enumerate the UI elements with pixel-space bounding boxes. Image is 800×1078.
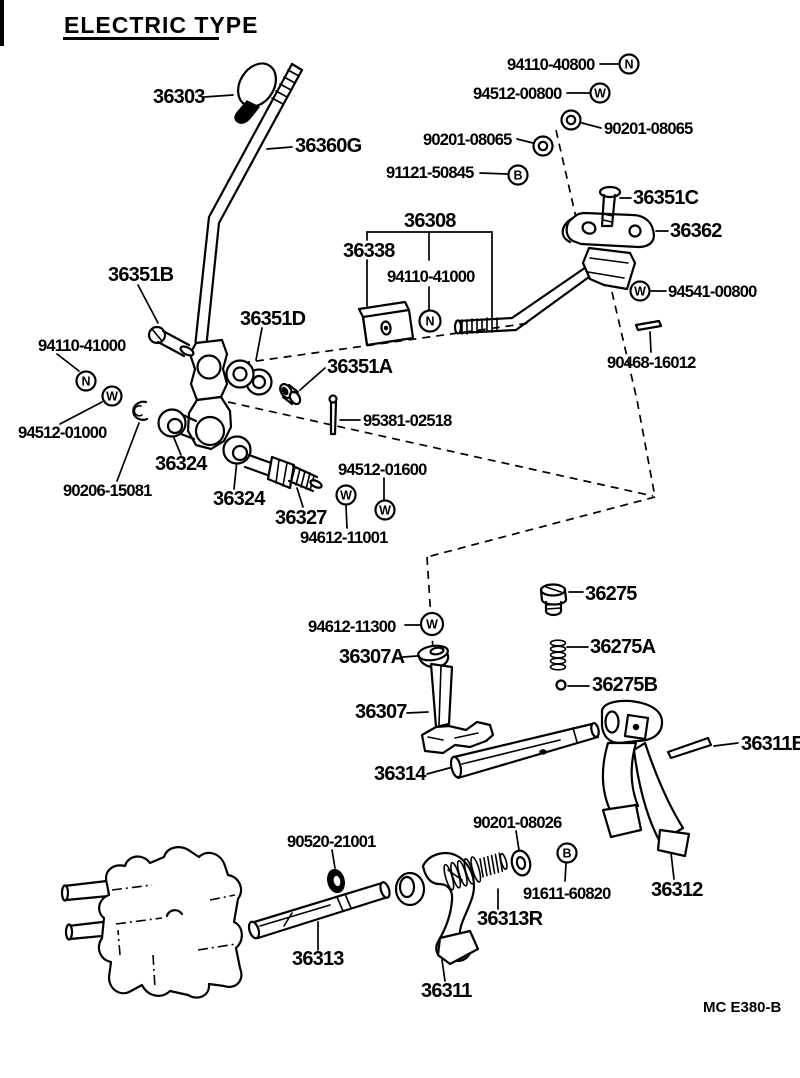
pin-95381-drawing bbox=[330, 396, 337, 435]
label-36275: 36275 bbox=[585, 583, 637, 605]
label-36351B: 36351B bbox=[108, 264, 174, 286]
label-90206-15081: 90206-15081 bbox=[63, 482, 152, 500]
svg-text:B: B bbox=[562, 847, 571, 861]
label-36351D: 36351D bbox=[240, 308, 306, 330]
bolt-badge-icon: B bbox=[509, 166, 528, 185]
label-90468-16012: 90468-16012 bbox=[607, 354, 696, 372]
label-91121-50845: 91121-50845 bbox=[386, 164, 474, 182]
washer-90201-08026-drawing bbox=[509, 849, 533, 878]
washer-badge-icon: W bbox=[337, 486, 356, 505]
rod-36313-drawing bbox=[247, 881, 391, 939]
nut-badge-icon: N bbox=[420, 311, 441, 332]
rod-36308-drawing bbox=[455, 263, 592, 334]
page-title: ELECTRIC TYPE bbox=[64, 12, 258, 38]
label-90201-08026: 90201-08026 bbox=[473, 814, 562, 832]
label-36311B: 36311B bbox=[741, 733, 800, 755]
fork-36312-drawing bbox=[602, 701, 689, 856]
label-36308: 36308 bbox=[404, 210, 456, 232]
label-95381-02518: 95381-02518 bbox=[363, 412, 452, 430]
washer-badge-icon: W bbox=[376, 501, 395, 520]
svg-text:N: N bbox=[81, 375, 90, 389]
label-36312: 36312 bbox=[651, 879, 703, 901]
label-36303: 36303 bbox=[153, 86, 205, 108]
label-36327: 36327 bbox=[275, 507, 327, 529]
label-36314: 36314 bbox=[374, 763, 427, 785]
label-36313: 36313 bbox=[292, 948, 344, 970]
bushing-36351a-drawing bbox=[278, 382, 302, 406]
label-94541-00800: 94541-00800 bbox=[668, 283, 757, 301]
svg-text:W: W bbox=[340, 489, 352, 503]
label-94612-11300: 94612-11300 bbox=[308, 618, 396, 636]
label-36360G: 36360G bbox=[295, 135, 362, 157]
shift-knob-drawing bbox=[230, 56, 283, 123]
title-underline bbox=[63, 37, 219, 40]
nut-badge-icon: N bbox=[620, 55, 639, 74]
parts-diagram-page: N W B N W N W W W W B ELECTRIC TYPE 3630… bbox=[0, 0, 800, 1078]
label-90201-08065-left: 90201-08065 bbox=[423, 131, 512, 149]
svg-text:W: W bbox=[379, 504, 391, 518]
svg-text:B: B bbox=[513, 169, 522, 183]
bolt-badge-icon: B bbox=[558, 844, 577, 863]
label-36275A: 36275A bbox=[590, 636, 656, 658]
label-94110-40800: 94110-40800 bbox=[507, 56, 595, 74]
label-94110-41000-center: 94110-41000 bbox=[387, 268, 475, 286]
label-36351C: 36351C bbox=[633, 187, 699, 209]
label-94512-00800: 94512-00800 bbox=[473, 85, 562, 103]
label-36307: 36307 bbox=[355, 701, 407, 723]
label-36351A: 36351A bbox=[327, 356, 393, 378]
svg-text:W: W bbox=[594, 87, 606, 101]
ring-90520-drawing bbox=[325, 868, 346, 894]
label-91611-60820: 91611-60820 bbox=[523, 885, 611, 903]
svg-text:W: W bbox=[634, 285, 646, 299]
svg-text:W: W bbox=[426, 618, 438, 632]
svg-text:N: N bbox=[624, 58, 633, 72]
scan-artifact bbox=[0, 0, 4, 46]
clip-90206-drawing bbox=[133, 402, 147, 420]
label-36338: 36338 bbox=[343, 240, 395, 262]
housing-drawing bbox=[62, 847, 242, 997]
diagram-canvas: N W B N W N W W W W B ELECTRIC TYPE 3630… bbox=[0, 0, 800, 1078]
coupling-drawing bbox=[583, 248, 635, 289]
svg-text:W: W bbox=[106, 390, 118, 404]
switch-36338-drawing bbox=[359, 302, 413, 345]
label-36324-upper: 36324 bbox=[155, 453, 208, 475]
label-36313R: 36313R bbox=[477, 908, 544, 930]
label-90201-08065-right: 90201-08065 bbox=[604, 120, 693, 138]
joint-36327-drawing bbox=[268, 457, 323, 491]
washer-90201-right-drawing bbox=[562, 111, 581, 130]
label-90520-21001: 90520-21001 bbox=[287, 833, 376, 851]
spring-36275a-drawing bbox=[551, 640, 566, 670]
washer-90201-left-drawing bbox=[534, 137, 553, 156]
label-94612-11001: 94612-11001 bbox=[300, 529, 388, 547]
label-94512-01000: 94512-01000 bbox=[18, 424, 107, 442]
bracket-36362-drawing bbox=[563, 213, 654, 247]
label-36275B: 36275B bbox=[592, 674, 658, 696]
link-36324-lower-drawing bbox=[224, 437, 275, 477]
washer-badge-icon: W bbox=[591, 84, 610, 103]
label-36307A: 36307A bbox=[339, 646, 405, 668]
label-36311: 36311 bbox=[421, 980, 472, 1002]
washer-badge-icon: W bbox=[103, 387, 122, 406]
pin-36311b-drawing bbox=[668, 738, 711, 758]
plug-36275-drawing bbox=[541, 585, 566, 616]
pin-90468-drawing bbox=[636, 321, 661, 330]
washer-badge-icon: W bbox=[421, 613, 443, 635]
label-94110-41000-left: 94110-41000 bbox=[38, 337, 126, 355]
ball-36275b-drawing bbox=[557, 681, 566, 690]
bushing-36351d-drawing bbox=[227, 361, 272, 395]
inner-lever-36307-drawing bbox=[422, 664, 493, 753]
label-94512-01600: 94512-01600 bbox=[338, 461, 427, 479]
nut-badge-icon: N bbox=[77, 372, 96, 391]
label-36324-lower: 36324 bbox=[213, 488, 266, 510]
label-36362: 36362 bbox=[670, 220, 722, 242]
svg-text:N: N bbox=[425, 315, 434, 329]
diagram-code: MC E380-B bbox=[703, 999, 782, 1016]
washer-badge-icon: W bbox=[631, 282, 650, 301]
bolt-36351b-drawing bbox=[149, 327, 195, 357]
